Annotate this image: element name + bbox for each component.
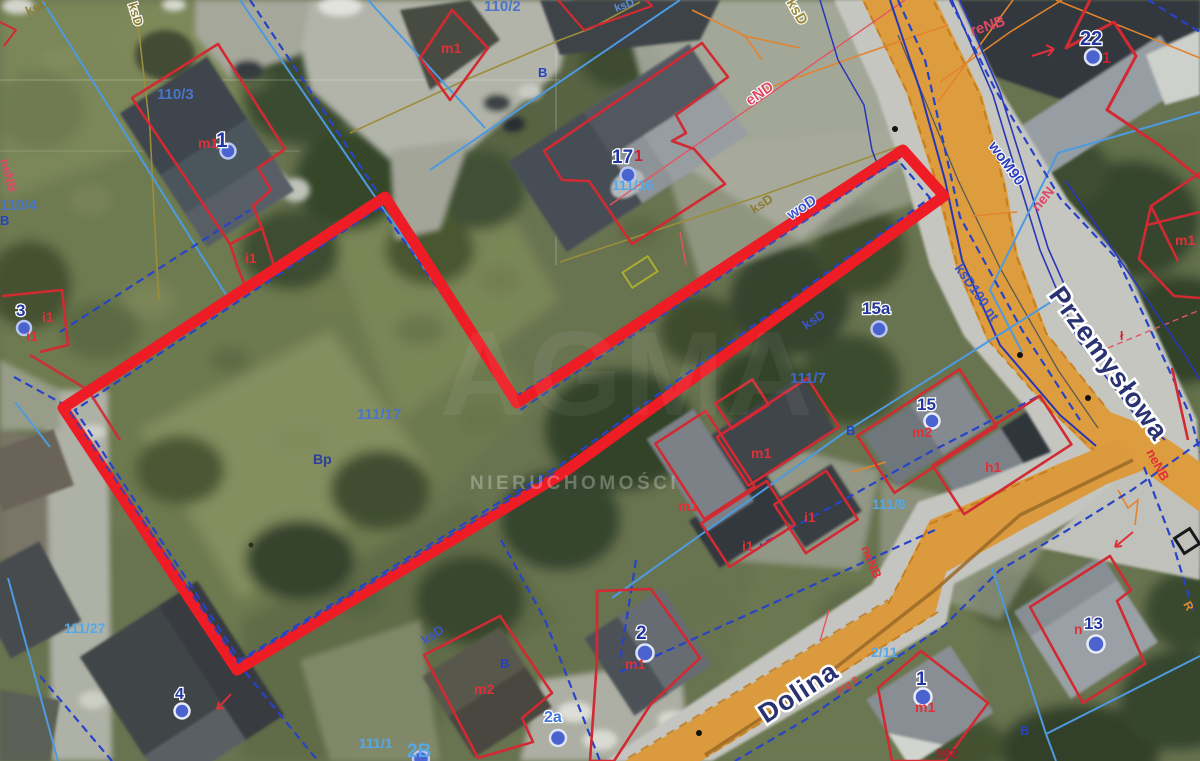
svg-text:982: 982 xyxy=(936,746,958,761)
svg-text:B: B xyxy=(500,656,509,671)
svg-text:m1: m1 xyxy=(198,135,218,151)
svg-text:1: 1 xyxy=(916,669,927,690)
svg-text:17: 17 xyxy=(612,147,633,168)
svg-text:111/17: 111/17 xyxy=(357,406,401,423)
svg-text:1: 1 xyxy=(1102,50,1111,67)
svg-text:110/2: 110/2 xyxy=(484,0,521,15)
svg-text:22: 22 xyxy=(1080,28,1102,50)
svg-text:m1: m1 xyxy=(625,656,645,672)
svg-text:i1: i1 xyxy=(804,509,816,525)
svg-text:3: 3 xyxy=(16,301,25,320)
svg-text:NIERUCHOMOŚCI: NIERUCHOMOŚCI xyxy=(470,472,679,494)
svg-text:13: 13 xyxy=(1084,614,1103,633)
svg-text:m1: m1 xyxy=(915,699,935,715)
svg-text:B: B xyxy=(538,65,547,80)
svg-text:4: 4 xyxy=(175,686,184,703)
svg-text:110/3: 110/3 xyxy=(157,86,194,103)
svg-text:2/11: 2/11 xyxy=(871,644,898,660)
svg-text:Bp: Bp xyxy=(313,451,332,467)
svg-text:m1: m1 xyxy=(751,445,771,461)
svg-text:m1: m1 xyxy=(1175,232,1195,248)
svg-text:i1: i1 xyxy=(26,328,38,344)
svg-text:AGMA: AGMA xyxy=(440,307,815,441)
svg-text:B: B xyxy=(1020,723,1029,738)
svg-text:111/27: 111/27 xyxy=(64,620,105,636)
svg-text:m1: m1 xyxy=(678,498,698,514)
svg-text:n: n xyxy=(1074,621,1083,637)
svg-text:110/4: 110/4 xyxy=(0,197,37,214)
svg-text:111/7: 111/7 xyxy=(790,370,826,387)
svg-text:m2: m2 xyxy=(912,424,932,440)
svg-text:m1: m1 xyxy=(441,40,461,56)
svg-text:i1: i1 xyxy=(245,250,257,266)
svg-text:i1: i1 xyxy=(742,538,754,554)
svg-text:111/1: 111/1 xyxy=(359,735,393,751)
svg-text:2: 2 xyxy=(636,623,647,644)
svg-text:15: 15 xyxy=(917,395,936,414)
svg-text:2B: 2B xyxy=(407,741,431,761)
svg-text:2a: 2a xyxy=(544,709,562,726)
svg-text:B: B xyxy=(0,213,9,228)
svg-text:m2: m2 xyxy=(474,681,494,697)
svg-text:111/8: 111/8 xyxy=(872,496,906,512)
svg-text:B: B xyxy=(846,423,855,438)
svg-text:111/16: 111/16 xyxy=(612,177,653,193)
svg-text:i1: i1 xyxy=(42,309,54,325)
svg-text:h1: h1 xyxy=(985,459,1002,475)
svg-text:15a: 15a xyxy=(862,299,891,318)
svg-text:1: 1 xyxy=(634,148,643,165)
